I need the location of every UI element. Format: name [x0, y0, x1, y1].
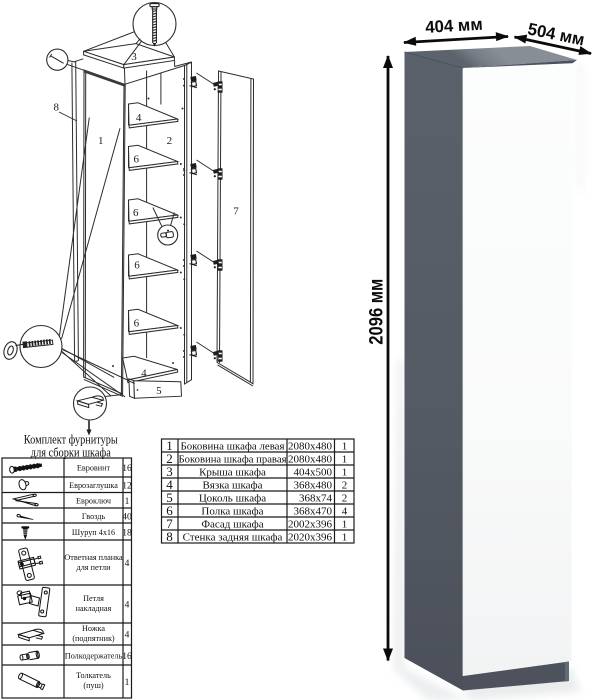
svg-text:4: 4 — [136, 112, 142, 124]
svg-text:1: 1 — [342, 454, 348, 466]
svg-text:1: 1 — [125, 678, 130, 688]
svg-text:Полкодержатель: Полкодержатель — [65, 652, 123, 661]
svg-text:Ножка: Ножка — [82, 624, 105, 633]
svg-text:Еврозаглушка: Еврозаглушка — [69, 481, 118, 490]
svg-text:1: 1 — [342, 441, 348, 453]
svg-text:2080x480: 2080x480 — [288, 454, 333, 466]
svg-text:2096 мм: 2096 мм — [367, 279, 388, 345]
svg-text:4: 4 — [125, 601, 130, 611]
svg-text:5: 5 — [156, 385, 162, 397]
svg-text:404 мм: 404 мм — [425, 15, 483, 37]
svg-text:Евроключ: Евроключ — [76, 497, 111, 506]
svg-text:Боковина шкафа левая: Боковина шкафа левая — [181, 441, 285, 453]
svg-text:18: 18 — [122, 529, 132, 539]
svg-text:2020x396: 2020x396 — [288, 532, 333, 544]
svg-text:(пуш): (пуш) — [83, 681, 104, 690]
svg-text:4: 4 — [342, 506, 348, 518]
svg-text:для сборки шкафа: для сборки шкафа — [31, 446, 111, 460]
svg-text:(подпятник): (подпятник) — [72, 634, 115, 643]
svg-text:Вязка шкафа: Вязка шкафа — [202, 480, 262, 492]
svg-text:2: 2 — [342, 493, 348, 505]
svg-text:6: 6 — [134, 318, 140, 330]
svg-text:2002x396: 2002x396 — [288, 519, 333, 531]
svg-text:4: 4 — [125, 559, 130, 569]
svg-text:1: 1 — [342, 532, 348, 544]
svg-text:2080x480: 2080x480 — [288, 441, 333, 453]
svg-text:368x480: 368x480 — [294, 480, 333, 492]
svg-text:Толкатель: Толкатель — [76, 671, 111, 680]
svg-text:Евровинт: Евровинт — [77, 464, 111, 473]
svg-text:2: 2 — [342, 480, 348, 492]
svg-text:368x74: 368x74 — [299, 493, 333, 505]
svg-text:1: 1 — [125, 497, 130, 507]
svg-text:4: 4 — [141, 367, 147, 379]
svg-text:16: 16 — [122, 652, 132, 662]
svg-text:368x470: 368x470 — [294, 506, 333, 518]
svg-text:Шуруп 4x16: Шуруп 4x16 — [72, 528, 115, 537]
svg-text:Ответная планка: Ответная планка — [64, 553, 123, 562]
svg-text:1: 1 — [342, 467, 348, 479]
svg-text:Крыша шкафа: Крыша шкафа — [199, 467, 266, 479]
svg-text:4: 4 — [125, 631, 130, 641]
svg-text:1: 1 — [342, 519, 348, 531]
svg-text:Цоколь шкафа: Цоколь шкафа — [199, 493, 266, 505]
svg-text:1: 1 — [98, 135, 104, 147]
svg-text:8: 8 — [166, 529, 173, 544]
svg-text:Стенка задняя шкафа: Стенка задняя шкафа — [183, 532, 283, 544]
svg-text:404x500: 404x500 — [294, 467, 333, 479]
svg-text:8: 8 — [54, 102, 60, 114]
svg-text:Фасад шкафа: Фасад шкафа — [201, 519, 263, 531]
svg-text:40: 40 — [122, 513, 132, 523]
svg-text:2: 2 — [167, 135, 173, 147]
svg-text:Петля: Петля — [83, 594, 104, 603]
svg-text:для петли: для петли — [77, 563, 112, 572]
svg-text:7: 7 — [233, 206, 239, 218]
svg-text:Полка шкафа: Полка шкафа — [201, 506, 263, 518]
svg-text:12: 12 — [122, 482, 132, 492]
svg-text:Боковина шкафа правая: Боковина шкафа правая — [179, 454, 287, 466]
svg-text:6: 6 — [133, 207, 139, 219]
svg-text:Гвоздь: Гвоздь — [82, 512, 106, 521]
svg-text:6: 6 — [133, 154, 139, 166]
svg-text:6: 6 — [134, 260, 140, 272]
svg-text:Комплект фурнитуры: Комплект фурнитуры — [24, 433, 118, 447]
svg-text:накладная: накладная — [76, 604, 112, 613]
svg-text:16: 16 — [122, 464, 132, 474]
